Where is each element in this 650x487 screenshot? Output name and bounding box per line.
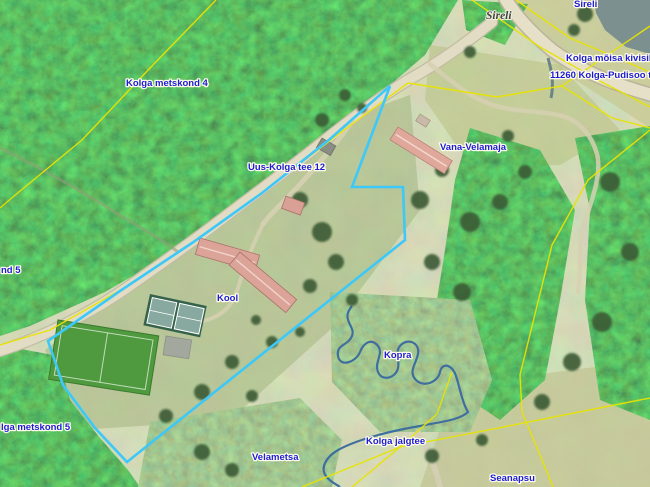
label-kool: Kool	[217, 293, 238, 304]
basketball-court	[163, 336, 192, 359]
label-velametsa: Velametsa	[252, 452, 299, 463]
label-uus-kolga-tee: Uus-Kolga tee 12	[248, 162, 325, 173]
label-seanapsu: Seanapsu	[490, 473, 535, 484]
label-vana-velamaja: Vana-Velamaja	[440, 142, 507, 153]
map-viewport[interactable]: Sireli Sireli Kolga mõisa kivisild 11260…	[0, 0, 650, 487]
label-sireli-top: Sireli	[574, 0, 597, 10]
label-sireli-landmark: Sireli	[486, 10, 512, 22]
label-metskond-4: Kolga metskond 4	[126, 78, 209, 89]
label-nd-5: nd 5	[1, 265, 21, 276]
label-kopra: Kopra	[384, 350, 412, 361]
aerial-map-canvas[interactable]: Sireli Sireli Kolga mõisa kivisild 11260…	[0, 0, 650, 487]
label-kolga-jalgtee: Kolga jalgtee	[366, 436, 425, 447]
label-kivisild: Kolga mõisa kivisild	[566, 53, 650, 64]
label-metskond-5: lga metskond 5	[1, 422, 71, 433]
label-pudisoo-tee: 11260 Kolga-Pudisoo tee	[550, 70, 650, 81]
